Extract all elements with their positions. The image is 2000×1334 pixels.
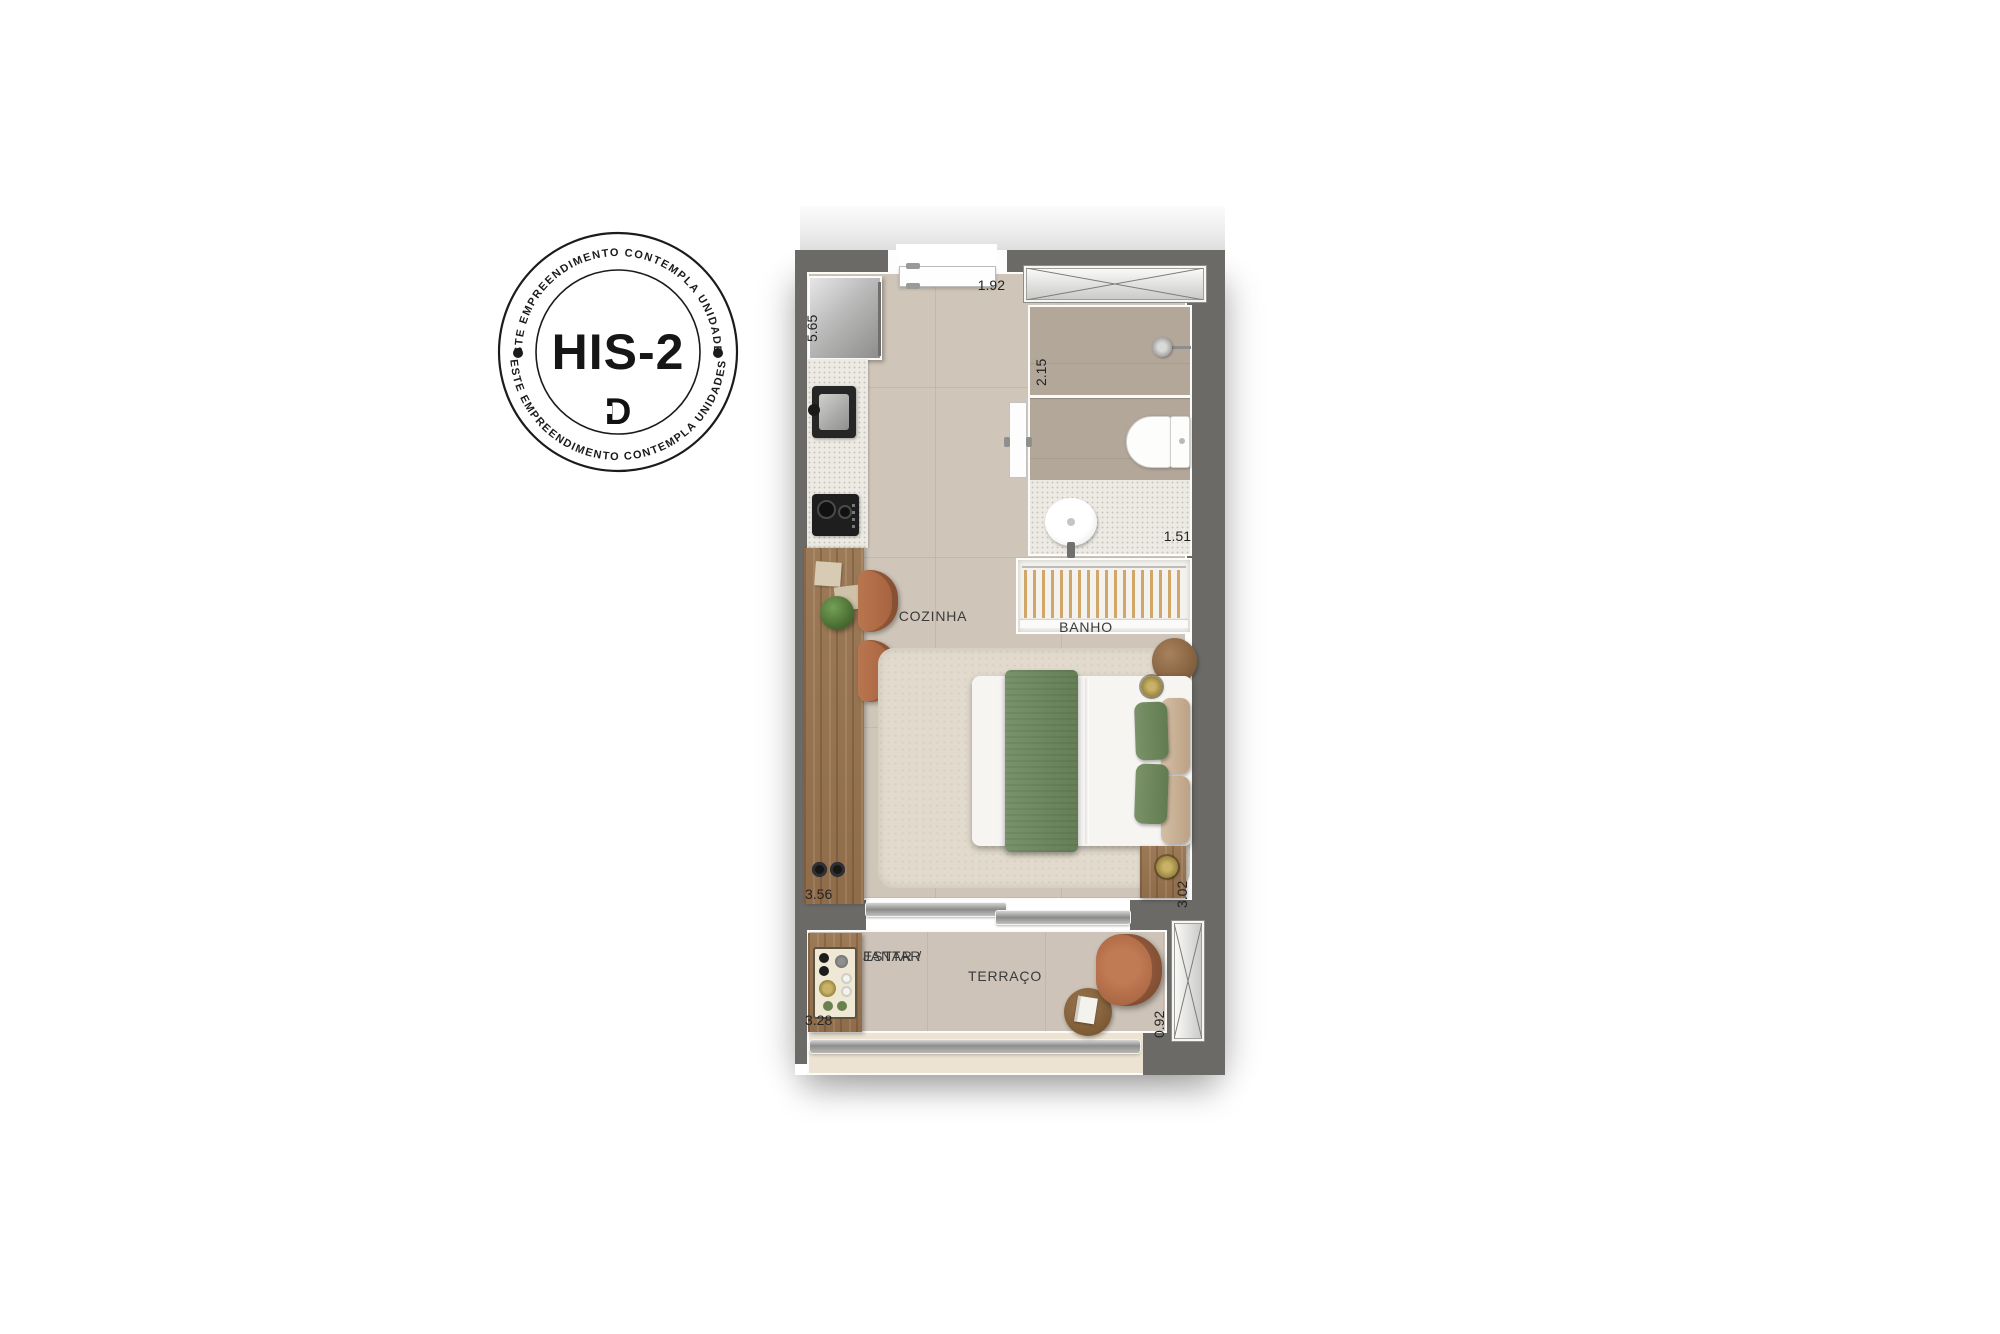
burner-icon: [817, 500, 836, 519]
dimension-estar-depth: 3.02: [1174, 864, 1190, 908]
room-label-line: JANTAR: [863, 946, 921, 966]
washbasin-drain-icon: [1067, 518, 1075, 526]
room-label-terraco: TERRAÇO: [945, 968, 1065, 984]
wall-right: [1192, 250, 1225, 900]
window-right: [1172, 921, 1204, 1041]
glass-icon: [823, 1001, 833, 1011]
room-label-cozinha: COZINHA: [878, 608, 988, 624]
sliding-door-panel: [996, 911, 1130, 924]
room-label-banho: BANHO: [1031, 619, 1141, 635]
floor-plan: COZINHA BANHO ESTAR / JANTAR TERRAÇO 5.6…: [795, 206, 1225, 1086]
dimension-entrada-width: 1.92: [965, 277, 1005, 293]
burner-icon: [838, 505, 852, 519]
bed-sheet-fold: [1085, 678, 1089, 844]
plant-icon: [820, 596, 854, 630]
developer-logo-notch: [598, 406, 612, 414]
door-jamb-left: [888, 250, 899, 272]
cooktop-icon: [812, 494, 859, 536]
sink-faucet-icon: [808, 404, 820, 416]
book-icon: [1074, 996, 1098, 1025]
kitchen-sink-icon: [812, 386, 856, 438]
toilet-flush-icon: [1179, 438, 1185, 444]
dimension-terraco-depth: 0.92: [1151, 992, 1167, 1038]
door-handle-icon: [906, 283, 920, 289]
top-slab-shadow: [800, 206, 1225, 250]
cup-icon: [841, 986, 852, 997]
wall-terrace-left: [795, 900, 866, 930]
bottle-icon: [835, 955, 848, 968]
bathroom-door: [1009, 402, 1027, 478]
window-top: [1024, 266, 1206, 302]
dimension-estar-width: 3.56: [805, 886, 849, 902]
dining-counter: [804, 548, 864, 904]
dimension-banho-width: 1.51: [1151, 528, 1191, 544]
door-jamb-right: [996, 250, 1007, 272]
closet-rail: [1022, 566, 1186, 568]
dimension-banho-depth: 2.15: [1033, 306, 1049, 386]
washbasin-faucet-icon: [1067, 542, 1075, 558]
pillow: [1134, 701, 1169, 760]
toilet-icon: [1126, 416, 1173, 468]
bar-tray: [813, 947, 857, 1019]
cooktop-knobs: [852, 502, 855, 528]
bed-runner: [1005, 670, 1078, 852]
sliding-door-panel: [866, 903, 1006, 916]
closet-hangers-icon: [1024, 570, 1184, 618]
door-handle-icon: [1026, 437, 1032, 447]
door-handle-icon: [1004, 437, 1010, 447]
bottle-icon: [819, 953, 829, 963]
door-handle-icon: [906, 263, 920, 269]
dimension-terraco-width: 3.28: [805, 1012, 849, 1028]
glass-icon: [837, 1001, 847, 1011]
bowl-icon: [812, 862, 827, 877]
cup-icon: [841, 973, 852, 984]
sink-basin: [819, 394, 849, 430]
shower-glass-partition: [1030, 395, 1190, 398]
bottle-icon: [819, 966, 829, 976]
railing: [810, 1040, 1140, 1053]
dimension-cozinha-depth: 5.65: [804, 262, 820, 342]
pillow: [1134, 763, 1169, 824]
placemat: [814, 561, 842, 587]
his-2-stamp: ESTE EMPREENDIMENTO CONTEMPLA UNIDADES E…: [488, 222, 748, 482]
ice-bucket-icon: [819, 980, 836, 997]
stamp-title: HIS-2: [552, 324, 685, 380]
page: ESTE EMPREENDIMENTO CONTEMPLA UNIDADES E…: [0, 0, 2000, 1334]
table-lamp-icon: [1141, 676, 1162, 697]
bowl-icon: [830, 862, 845, 877]
shower-head-icon: [1152, 337, 1172, 357]
refrigerator-hinge: [878, 282, 881, 356]
